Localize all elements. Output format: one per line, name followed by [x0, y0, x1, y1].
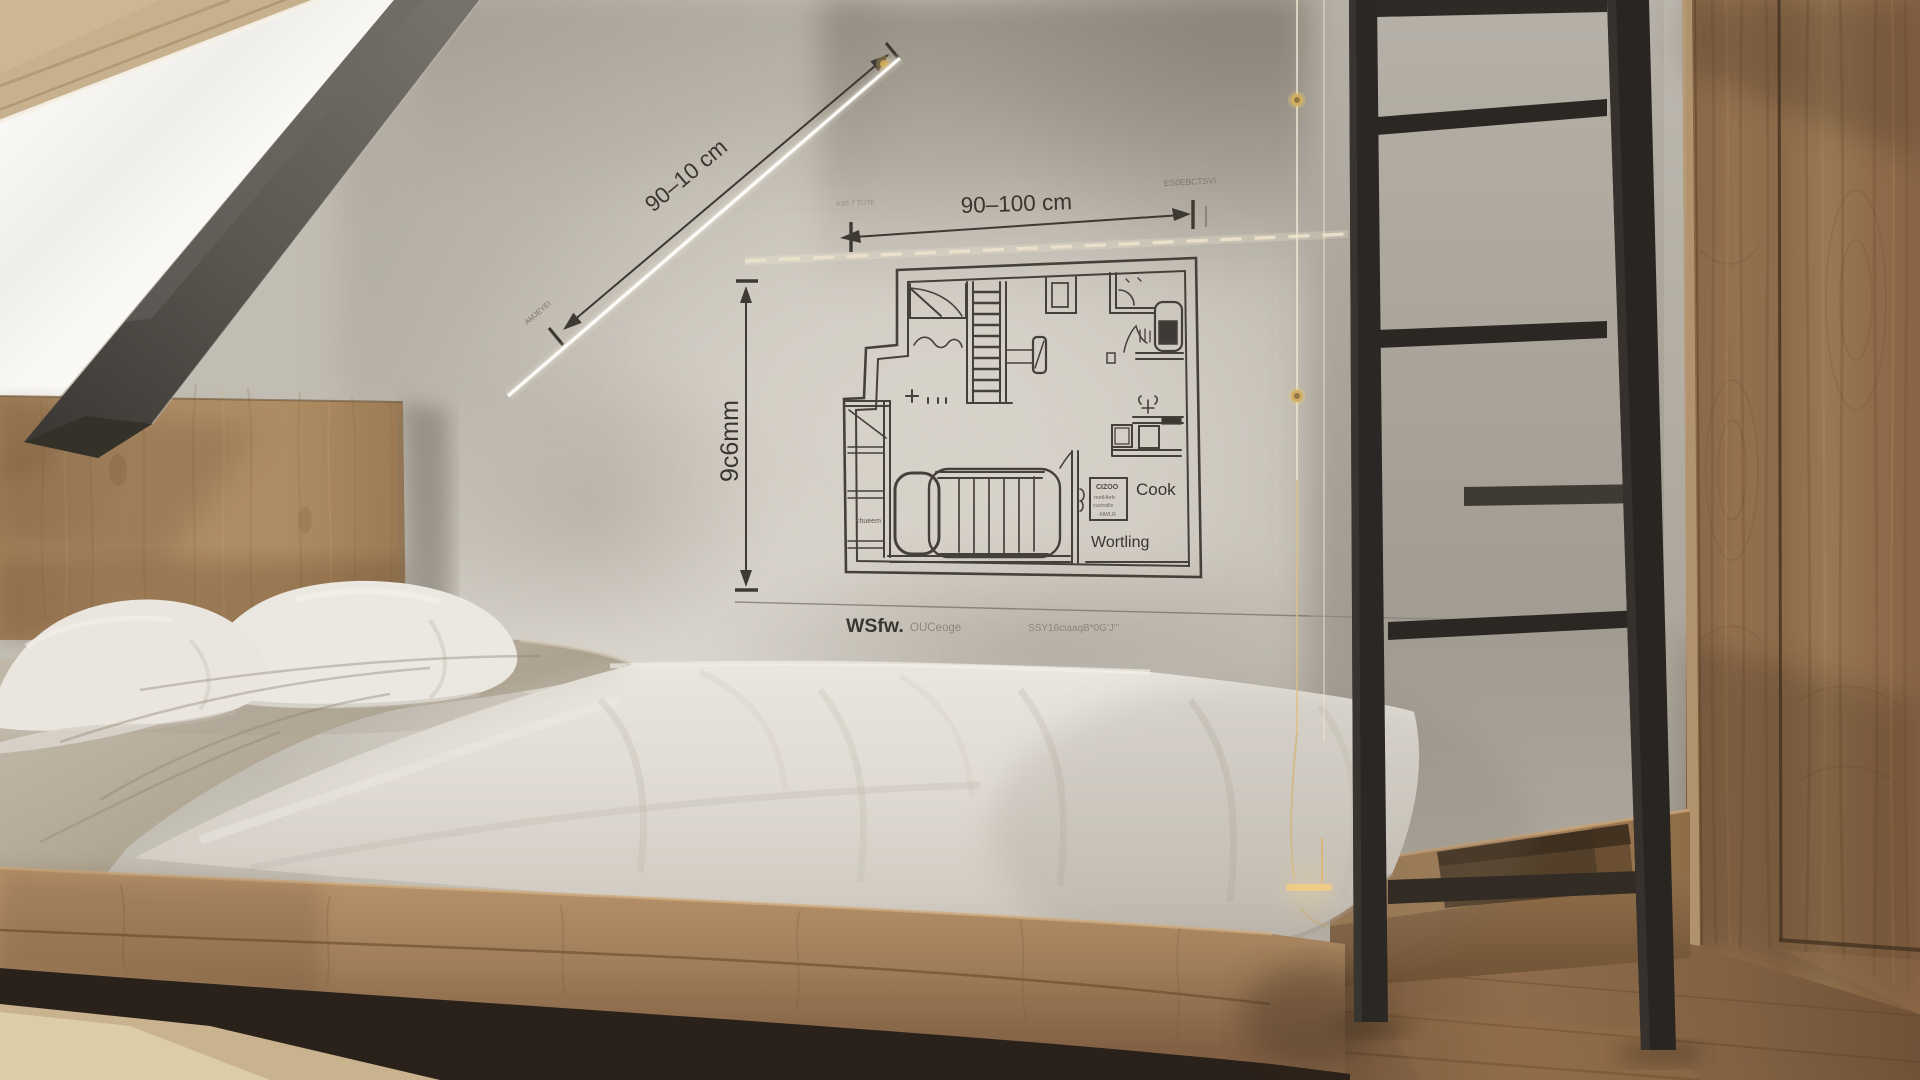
svg-text:cuetrotlle: cuetrotlle — [1093, 503, 1114, 509]
svg-text:Cook: Cook — [1136, 480, 1176, 499]
svg-text:chueem: chueem — [856, 518, 881, 525]
svg-text:metHteb: metHteb — [1094, 495, 1115, 501]
svg-text:ES0EBCTSVI: ES0EBCTSVI — [1164, 175, 1217, 188]
svg-text:AS6.7 TUTK: AS6.7 TUTK — [836, 200, 876, 208]
svg-text:WSfw.: WSfw. — [846, 615, 904, 637]
svg-text:-NWLR: -NWLR — [1098, 512, 1116, 518]
svg-text:OUCeoge: OUCeoge — [910, 622, 961, 634]
svg-text:90–100 cm: 90–100 cm — [960, 189, 1072, 218]
svg-text:9c6mm: 9c6mm — [716, 400, 744, 482]
svg-text:Wortling: Wortling — [1091, 534, 1149, 551]
svg-text:SSY16ciaaqB*0G'J'": SSY16ciaaqB*0G'J'" — [1028, 623, 1120, 634]
svg-text:CIZOO: CIZOO — [1096, 484, 1119, 491]
svg-text:AMJEYEI: AMJEYEI — [523, 299, 553, 327]
svg-text:90–10 cm: 90–10 cm — [640, 134, 732, 217]
